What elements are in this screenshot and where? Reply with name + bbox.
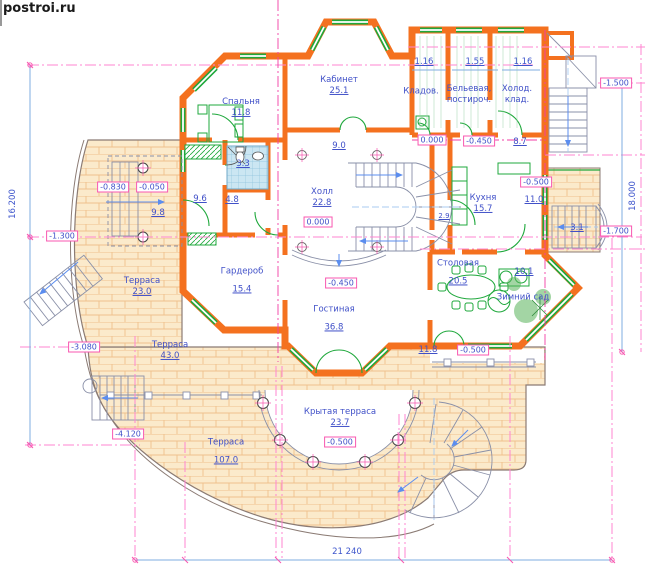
room-label-cabinet: Кабинет 25.1 bbox=[320, 75, 358, 97]
dim-right-total: 18.000 bbox=[628, 181, 638, 211]
level-mark-m308: -3.080 bbox=[68, 342, 100, 353]
area-label-pantry: 2.9 bbox=[438, 212, 449, 220]
area-label-hall-right: 8.7 bbox=[513, 137, 527, 147]
room-label-terrace-mid: Терраса 43.0 bbox=[152, 340, 188, 362]
area-label-room-left: 9.6 bbox=[193, 194, 207, 204]
area-label-walkway: 11.8 bbox=[419, 345, 438, 355]
dim-window-1: 1.16 bbox=[415, 57, 434, 67]
dim-left-total: 16.200 bbox=[8, 189, 18, 219]
area-label-bath: 3.3 bbox=[236, 159, 250, 169]
room-label-winter-garden: Зимний сад bbox=[497, 292, 549, 303]
level-mark-zero-hall: 0.000 bbox=[304, 217, 333, 228]
level-mark-m050-terrace: -0.500 bbox=[520, 177, 552, 188]
room-label-terrace-big: Терраса 107.0 bbox=[208, 437, 244, 466]
room-label-wardrobe: Гардероб 15.4 bbox=[221, 266, 264, 295]
level-mark-m083: -0.830 bbox=[97, 182, 129, 193]
area-label-corridor-top: 9.0 bbox=[332, 141, 346, 151]
area-label-terrace-kitchen: 11.0 bbox=[525, 195, 544, 205]
room-label-linen: Бельевая, постироч. bbox=[447, 84, 492, 106]
area-label-vestibule: 9.8 bbox=[151, 208, 165, 218]
level-mark-m050-walk: -0.500 bbox=[457, 345, 489, 356]
dim-bottom-total: 21 240 bbox=[332, 547, 362, 557]
right-exterior-stair bbox=[549, 56, 596, 152]
level-mark-m170: -1.700 bbox=[600, 226, 632, 237]
level-mark-m045-top: -0.450 bbox=[463, 136, 495, 147]
dim-window-3: 1.16 bbox=[514, 57, 533, 67]
level-mark-m005: -0.050 bbox=[136, 182, 168, 193]
level-mark-zero-top: 0.000 bbox=[418, 135, 447, 146]
room-label-storage: Кладов. bbox=[403, 86, 438, 97]
level-mark-m130: -1.300 bbox=[46, 231, 78, 242]
room-label-dining: Столовая 20.5 bbox=[437, 258, 479, 287]
room-label-terrace-left: Терраса 23.0 bbox=[124, 276, 160, 298]
room-label-hall: Холл 22.8 bbox=[311, 187, 333, 209]
level-mark-m045-living: -0.450 bbox=[325, 278, 357, 289]
room-label-cold-storage: Холод. клад. bbox=[502, 84, 532, 106]
room-label-living: Гостиная 36.8 bbox=[313, 304, 354, 333]
room-label-covered-terrace: Крытая терраса 23.7 bbox=[304, 407, 376, 429]
area-label-stair-kitchen: 3.1 bbox=[570, 223, 584, 233]
brand-logo: postroi.ru bbox=[3, 1, 76, 16]
room-label-bedroom: Спальня 11.8 bbox=[222, 97, 260, 119]
area-label-winter-garden: 10.1 bbox=[515, 267, 534, 277]
level-mark-m150: -1.500 bbox=[600, 78, 632, 89]
level-mark-m412: -4.120 bbox=[112, 429, 144, 440]
area-label-corridor-left: 4.8 bbox=[225, 195, 239, 205]
room-label-kitchen: Кухня 15.7 bbox=[470, 193, 497, 215]
floor-plan-page: postroi.ru Спальня 11.8 Кабинет 25.1 Кла… bbox=[0, 0, 647, 572]
dim-window-2: 1.55 bbox=[466, 57, 485, 67]
level-mark-m050-colonnade: -0.500 bbox=[324, 437, 356, 448]
